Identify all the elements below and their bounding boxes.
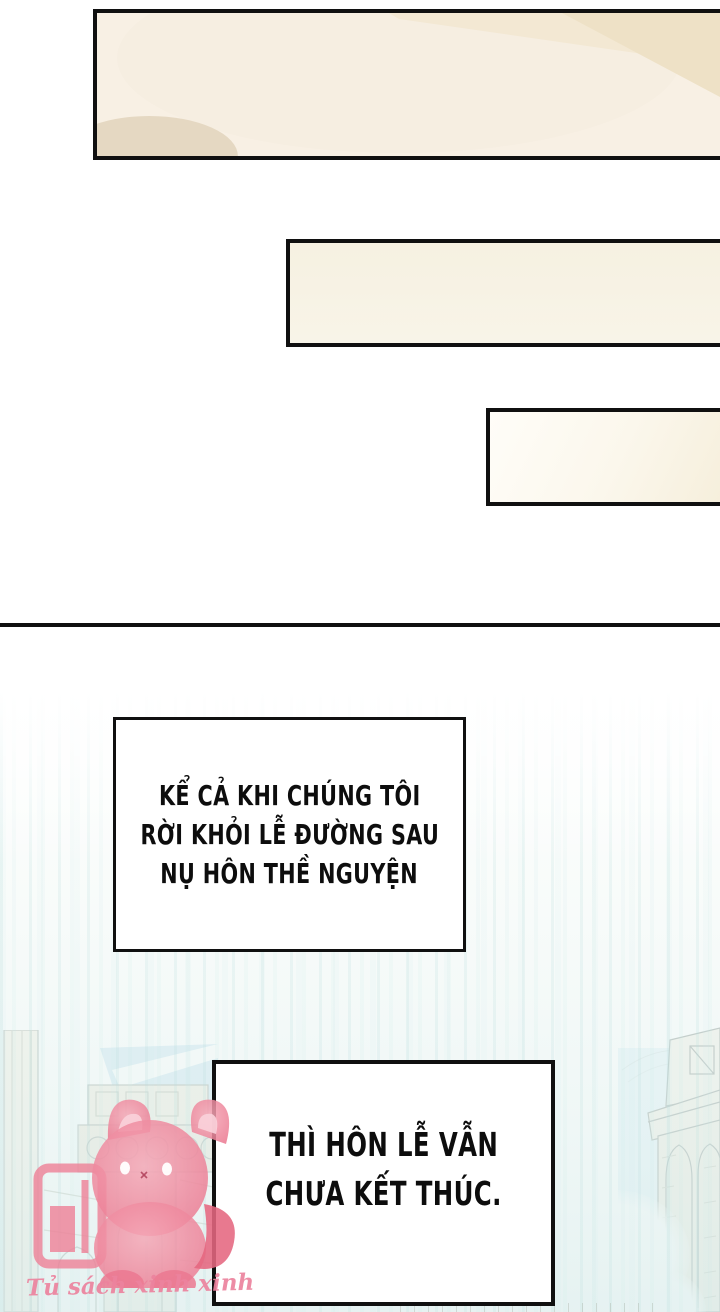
narration-line: RỜI KHỎI LỄ ĐƯỜNG SAU — [140, 815, 439, 854]
comic-page: KỂ CẢ KHI CHÚNG TÔI RỜI KHỎI LỄ ĐƯỜNG SA… — [0, 0, 720, 1312]
narration-box-top: KỂ CẢ KHI CHÚNG TÔI RỜI KHỎI LỄ ĐƯỜNG SA… — [113, 717, 466, 952]
narration-line: NỤ HÔN THỀ NGUYỆN — [161, 854, 419, 893]
watermark-text: Tủ sách xinh xinh — [26, 1269, 227, 1301]
watermark-logo — [22, 1088, 257, 1288]
narration-line: THÌ HÔN LỄ VẪN — [269, 1120, 498, 1169]
narration-line: CHƯA KẾT THÚC. — [265, 1169, 501, 1218]
panel-3 — [486, 408, 720, 506]
panel-1 — [93, 9, 720, 160]
panel-1-artwork — [97, 13, 720, 156]
panel-2 — [286, 239, 720, 347]
scene-divider-line — [0, 623, 720, 627]
narration-line: KỂ CẢ KHI CHÚNG TÔI — [159, 776, 421, 815]
cat-eye — [162, 1163, 172, 1176]
narration-box-bottom: THÌ HÔN LỄ VẪN CHƯA KẾT THÚC. — [212, 1060, 555, 1306]
watermark-cat-icon — [92, 1100, 235, 1288]
cat-eye — [120, 1162, 130, 1175]
